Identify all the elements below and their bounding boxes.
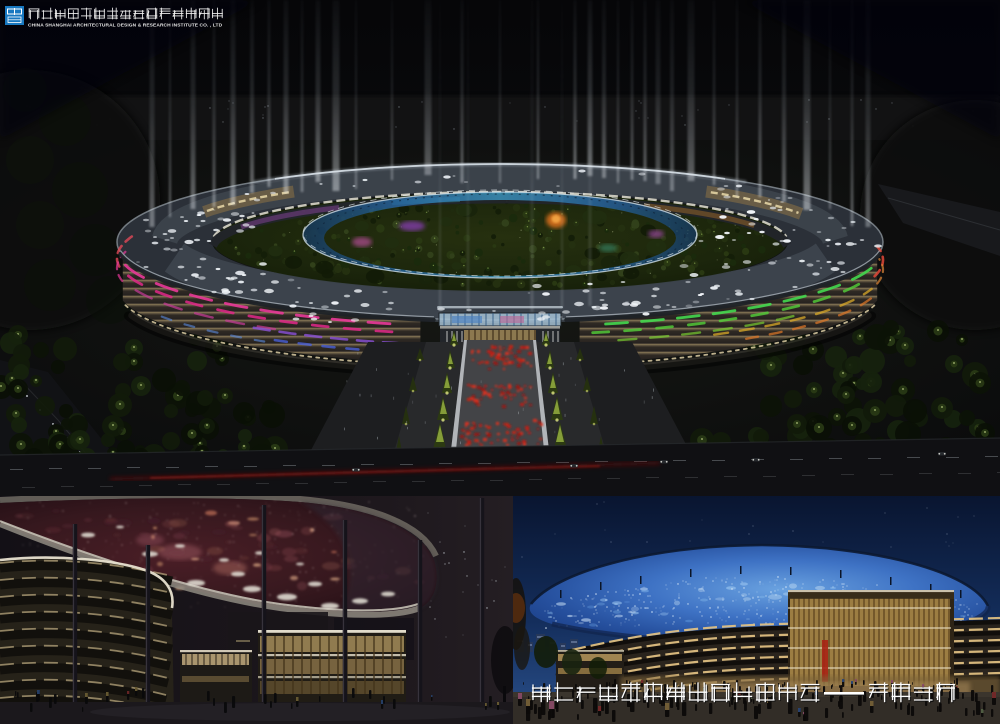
svg-text:CHINA SHANGHAI ARCHITECTURAL D: CHINA SHANGHAI ARCHITECTURAL DESIGN & RE… — [28, 23, 223, 29]
